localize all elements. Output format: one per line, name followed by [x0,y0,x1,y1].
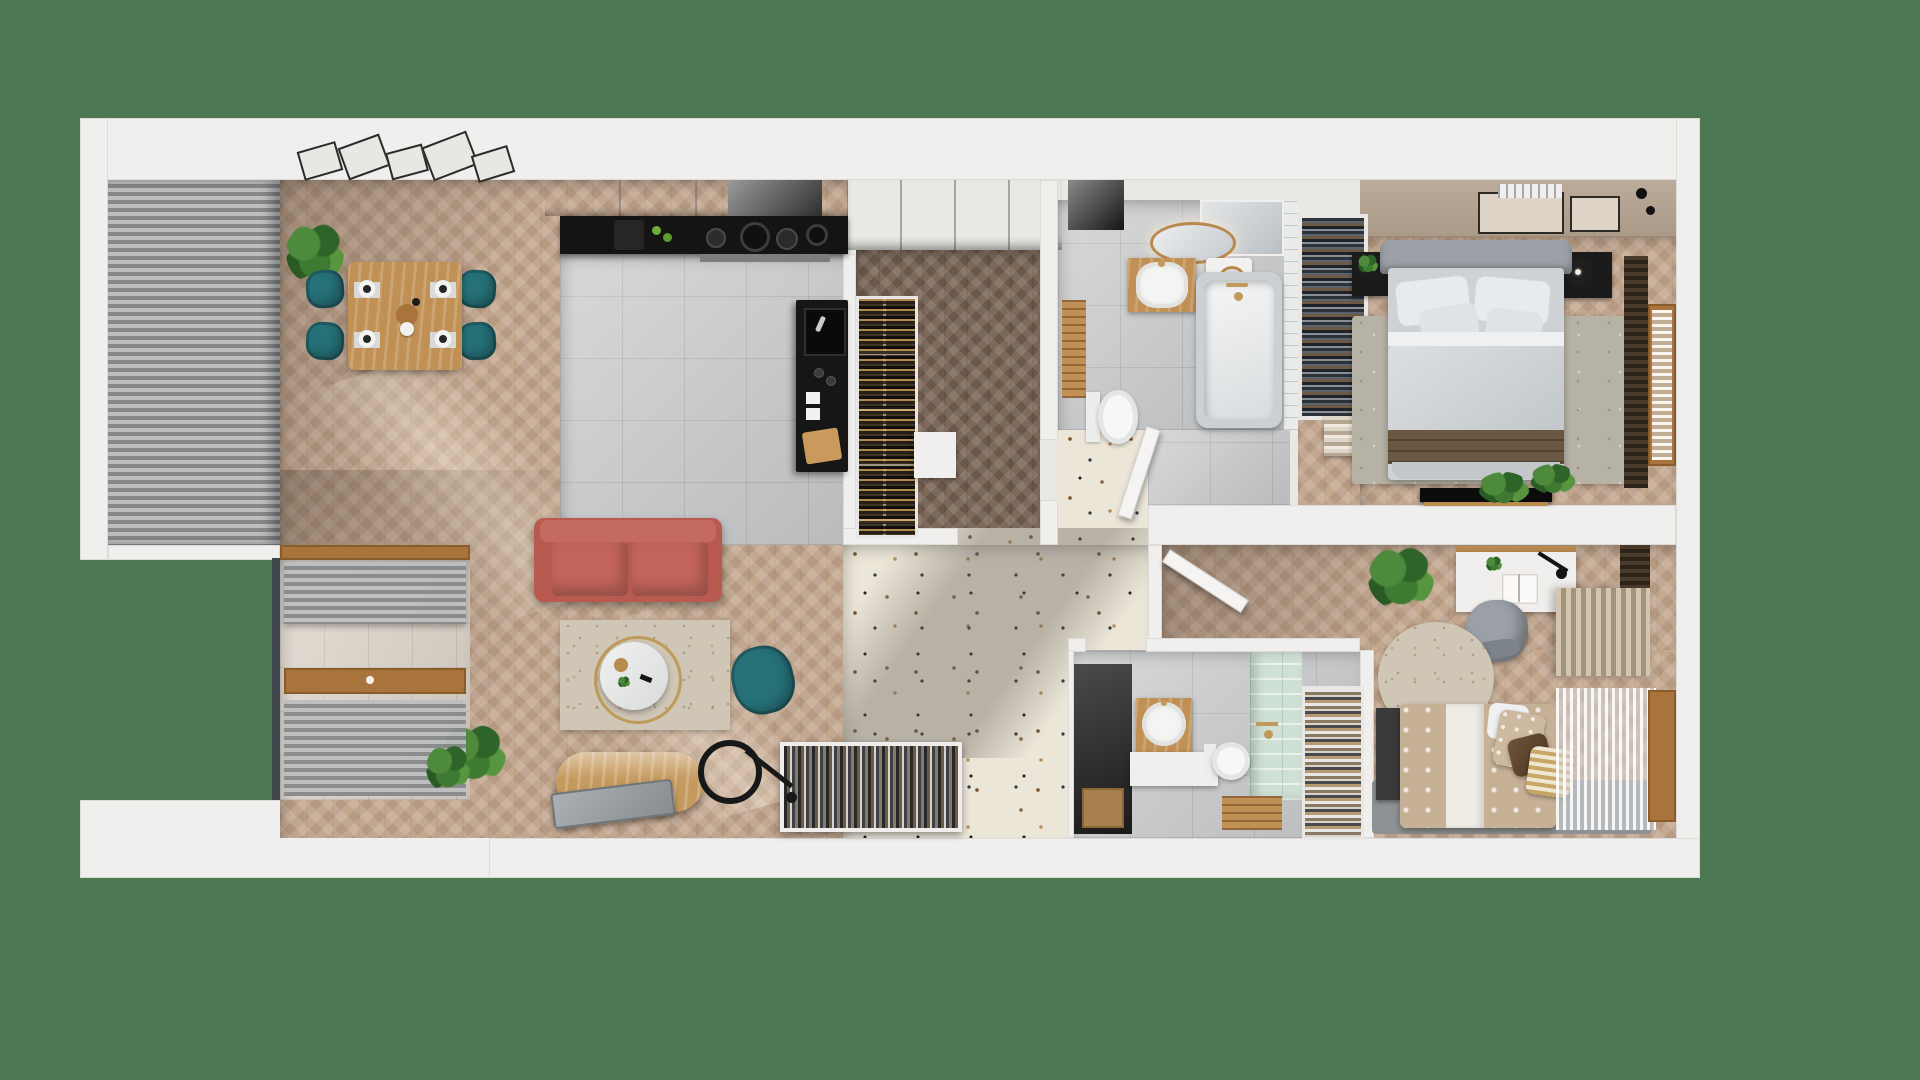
apple [663,233,672,242]
balcony-window-band [280,545,470,560]
bathroom-main-floor-tub-zone [1148,430,1290,505]
shaft-recess-2 [1068,180,1124,230]
vanity-faucet-icon [1158,260,1165,267]
kitchen-vent [700,254,830,262]
book-spine [1518,574,1520,602]
curtain-brown-2 [1620,545,1650,588]
sofa-cushion [552,542,628,596]
balcony-handle [366,676,374,684]
bed-throw [1388,430,1564,464]
bed-bench [1376,708,1400,800]
dining-chair [305,321,345,361]
wine-rack [856,296,918,538]
plate [434,330,452,348]
cardboard-box [1082,788,1124,828]
bedroom-plant [1478,472,1530,504]
wall-bathroom-shower-top-b [1146,638,1360,652]
plate [434,280,452,298]
bed-single-sheet-band [1446,704,1484,828]
outer-wall-left [80,118,108,560]
tub-drain-icon [1234,292,1243,301]
pot-icon [806,224,828,246]
building-notch [80,560,272,800]
hob-burner-icon [706,228,726,248]
wall-corridor-bathroom-b [1040,500,1058,545]
floor-lamp-ring [698,740,762,804]
cutting-board [802,427,843,464]
desk-plant [1486,556,1502,572]
island-bottle [826,376,836,386]
wood-crate [1222,796,1282,830]
office-plant [1368,546,1434,610]
desk-lamp-head [1556,568,1567,579]
vanity-basin [1136,262,1188,308]
bed-duvet [1388,346,1564,432]
pot-icon [740,222,770,252]
wall-corridor-bathroom-a [1040,180,1058,440]
island-sink [804,308,846,356]
open-book [1502,574,1538,604]
balcony-plant [426,744,470,792]
island-box [806,392,820,404]
shower-vanity-basin [1142,702,1186,746]
balcony-glass-edge [272,558,280,800]
vase [400,322,414,336]
sofa-cushion [632,542,708,596]
window-sheer-2 [1556,688,1656,830]
window-blinds-left [108,180,280,545]
outer-wall-right [1676,118,1700,878]
floor-plan-scene [0,0,1920,1080]
apple [652,226,661,235]
shower-shelf [1256,722,1278,726]
corridor-closet [848,180,1062,250]
nightstand-plant [1358,254,1378,274]
shower-vanity-faucet [1161,700,1167,706]
island-box [806,408,820,420]
tv-shelf [1424,502,1548,506]
plate [358,280,376,298]
bedroom2-window-frame [1648,690,1676,822]
coffee-table [600,642,668,710]
ceiling-vent [1498,184,1562,198]
wall-bath-tiled [1284,200,1298,430]
balcony-blinds-upper [284,562,466,624]
wall-bedrooms-divider [1148,505,1676,545]
coffee-table-board [614,658,628,672]
dining-chair [457,269,498,310]
plate [358,330,376,348]
wall-light-icon [1636,188,1647,199]
bath-bench [1062,300,1086,398]
bedroom-window-sheer [1652,310,1672,460]
balcony-sill [284,668,466,694]
island-bottle [814,368,824,378]
wall-balcony-top [108,545,280,560]
toilet-main-bowl [1098,390,1138,444]
bedroom-plant [1530,464,1576,494]
floor-lamp-base [786,792,797,803]
shoe-cabinet [780,742,962,832]
kitchen-counter [560,216,848,254]
table-lamp-bulb [1575,269,1581,275]
shower-mint-wall [1250,652,1302,800]
tub-faucet-icon [1226,283,1248,287]
sofa-back [540,520,716,542]
tall-shoe-rack [1302,686,1364,840]
curtain-beige [1556,588,1650,676]
hob-burner-icon [776,228,798,250]
bathtub-inner [1204,280,1274,420]
wall-light-icon [1646,206,1655,215]
dining-chair [457,321,497,361]
toilet-shower-bowl [1212,742,1250,780]
corridor-cabinet [914,432,956,478]
wall-hall-bedroom-second [1148,545,1162,650]
coffee-machine-icon [614,220,644,250]
coffee-table-sprig [618,676,630,688]
bedroom-frame-icon [1570,196,1620,232]
bottle [412,298,420,306]
bedroom-curtain-brown [1624,256,1648,488]
outer-wall-bottom [470,838,1700,878]
bedroom-frame-icon [1478,192,1564,234]
bed-sheet-band [1388,332,1564,346]
shower-head-icon [1264,730,1273,739]
dining-chair [305,269,346,310]
